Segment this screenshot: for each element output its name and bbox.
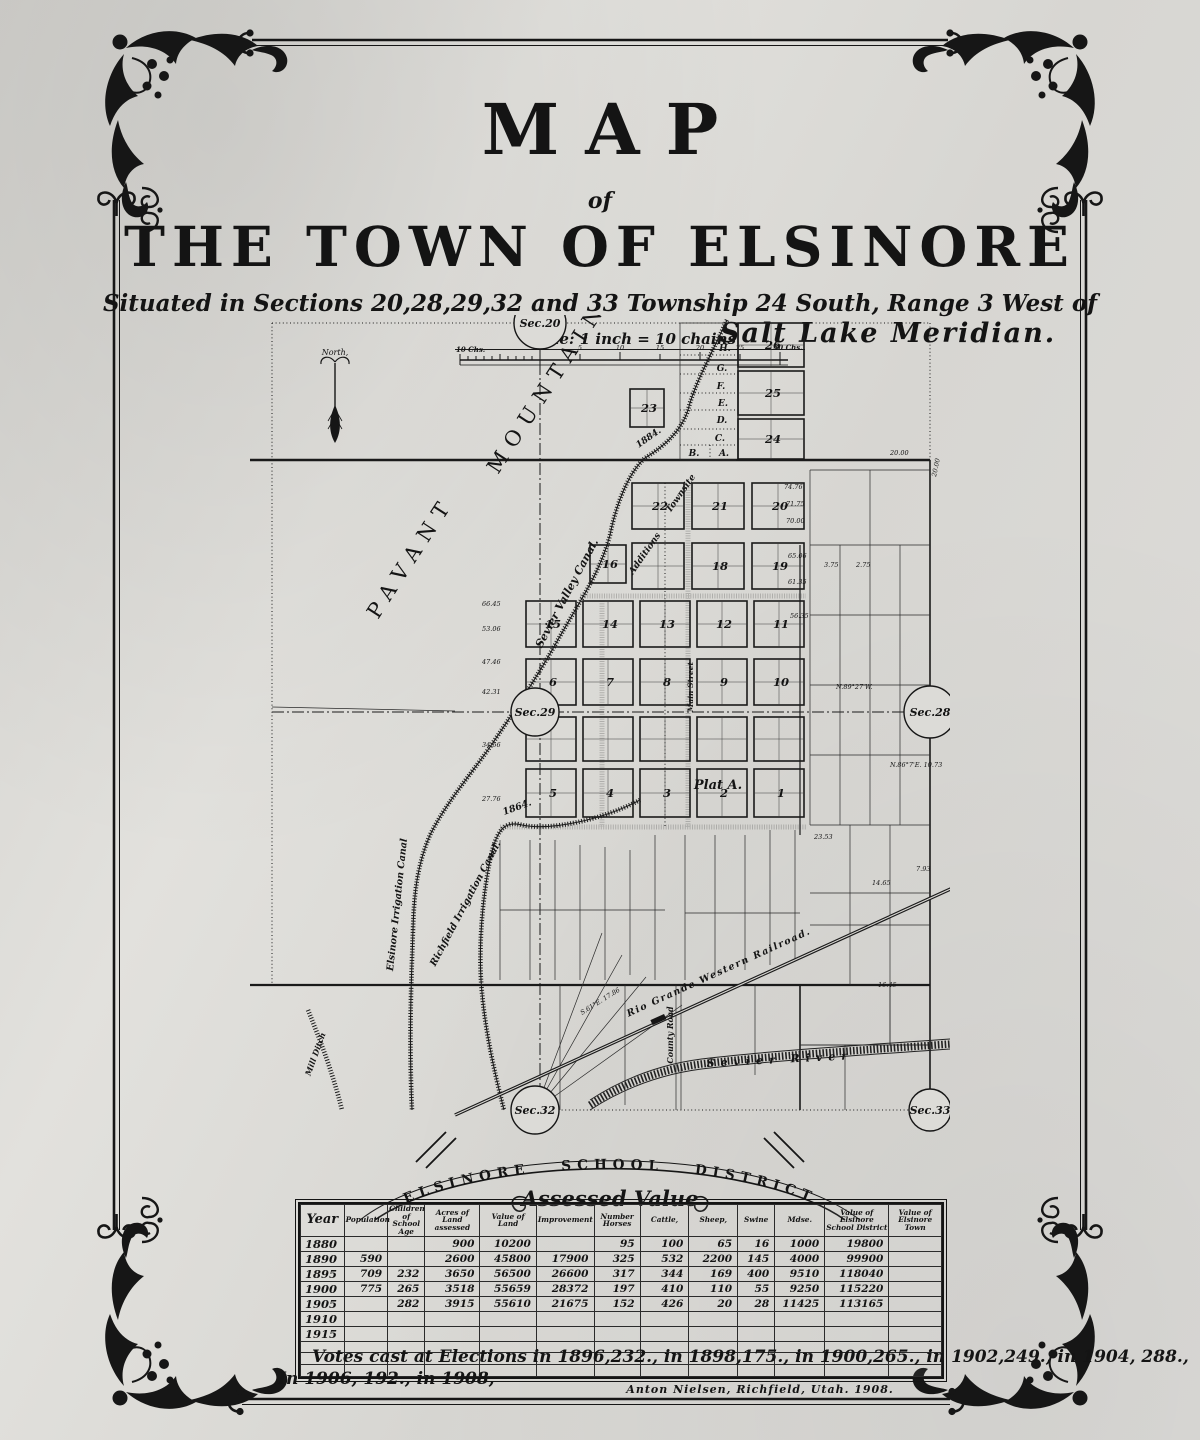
block-number: 11 [773,617,789,631]
block-number: 1 [777,786,785,800]
sec29-label: Sec.29 [515,706,556,719]
table-column-header: Number Horses [594,1205,640,1237]
block-number: 25 [764,386,781,400]
corner-flourish-bottom-left [105,1223,287,1409]
letter-lot-label: E. [717,399,728,409]
table-row: 188090010200951006516100019800 [301,1236,942,1251]
block-number: 6 [549,675,557,689]
map-title: MAP [0,88,1200,171]
table-column-header: Children of School Age [388,1205,425,1237]
county-road-label: County Road [665,1006,675,1064]
survey-measurement: 27.76 [481,795,501,803]
survey-measurement: 20.00 [930,458,942,479]
townsite-label: Townsite [665,473,699,515]
table-column-header: Acres of Land assessed [425,1205,480,1237]
block-number: 21 [711,499,728,513]
block-number: 5 [549,786,557,800]
votes-line1: Votes cast at Elections in 1896,232., in… [312,1347,1189,1367]
block-number: 18 [712,559,728,573]
block-number: 4 [606,786,614,800]
table-column-header: Population [344,1205,388,1237]
table-row: 1905282391555610216751524262028114251131… [301,1296,942,1311]
block-number: 9 [720,675,728,689]
sec28-label: Sec.28 [910,706,950,719]
table-row: 1910 [301,1311,942,1326]
north-label: North, [321,348,349,357]
block-number: 16 [602,557,618,571]
survey-measurement: 53.06 [482,625,501,633]
block-number: 7 [606,675,614,689]
sec32-label: Sec.32 [515,1104,556,1117]
richfield-canal-year: 1864. [501,797,533,818]
survey-measurement: N.89°27'W. [835,683,873,691]
main-street-label: Main Street [686,662,695,713]
survey-measurement: 70.00 [786,517,805,525]
survey-measurement: 71.75 [786,500,805,508]
survey-measurement: 14.65 [872,879,891,887]
survey-measurement: 74.76 [784,483,803,491]
measurements-layer: 20.0066.4553.0647.4642.3134.5627.7674.76… [481,449,942,1017]
table-column-header: Value of Elsinore School District [825,1205,889,1237]
survey-measurement: 42.31 [481,688,501,696]
survey-measurement: 34.56 [482,741,501,749]
table-column-header: Cattle, [640,1205,689,1237]
plat-a-label: Plat A. [693,778,742,793]
table-column-header: Value of Land [480,1205,536,1237]
subtitle-line1: Situated in Sections 20,28,29,32 and 33 … [0,290,1200,317]
letter-lot-label: A. [718,449,729,459]
block-number: 26 [764,338,781,352]
sec20-label: Sec.20 [520,317,561,330]
elsinore-canal-label: Elsinore Irrigation Canal [385,838,410,973]
cartographer-credit: Anton Nielsen, Richfield, Utah. 1908. [570,1383,950,1396]
block-number: 10 [773,675,789,689]
map-document-page: { "title": { "map": "MAP", "of": "of", "… [0,0,1200,1440]
sevier-river [590,1038,950,1110]
north-arrow: North, [321,348,349,443]
table-column-header: Swine [738,1205,775,1237]
block-number: 12 [716,617,732,631]
letter-lot-label: D. [716,416,728,426]
block-number: 19 [772,559,788,573]
survey-measurement: 3.75 [824,561,838,569]
survey-measurement: 7.93 [916,865,930,873]
railroad-label: Rio Grande Western Railroad. [624,926,813,1020]
letter-lot-label: F. [716,382,726,392]
survey-measurement: 66.45 [482,600,501,608]
table-column-header: Value of Elsinore Town [889,1205,942,1237]
survey-measurement: 61.35 [788,578,807,586]
table-row: 1900775265351855659283721974101105592501… [301,1281,942,1296]
letter-lots-layer: H.G.F.E.D.C.B.A. [688,344,731,459]
mill-ditch-label: Mill Ditch [302,1031,327,1078]
table-header-row: YearPopulationChildren of School AgeAcre… [301,1205,942,1237]
richfield-canal-label: Richfield Irrigation Canal. [428,840,504,969]
railroad-line [455,881,950,1115]
survey-measurement: 20.00 [889,449,909,457]
table-row: 1890590260045800179003255322200145400099… [301,1251,942,1266]
block-number: 14 [602,617,618,631]
table-row: 1895709232365056500266003173441694009510… [301,1266,942,1281]
survey-measurement: 56.35 [790,612,809,620]
block-number: 3 [663,786,671,800]
river-label: Sevier River [706,1049,853,1070]
survey-measurement: N.86°7'E. 10.73 [889,761,942,769]
table-column-header: Year [301,1205,345,1237]
block-number: 13 [659,617,675,631]
table-column-header: Sheep, [689,1205,738,1237]
title-of: of [0,188,1200,214]
table-column-header: Improvement [536,1205,594,1237]
sevier-valley-canal-label: Sevier Valley Canal. [533,537,602,650]
section-markers: Sec.20 Sec.29 Sec.28 Sec.32 Sec.33 [511,315,950,1134]
letter-lot-label: C. [715,434,725,444]
survey-measurement: S.61°E. 17.86 [579,986,622,1017]
letter-lot-label: H. [718,344,731,354]
survey-measurement: 65.06 [788,552,807,560]
table-row: 1915 [301,1326,942,1341]
table-column-header: Mdse. [775,1205,825,1237]
survey-measurement: 2.75 [855,561,870,569]
block-number: 8 [663,675,671,689]
town-title: THE TOWN OF ELSINORE [0,214,1200,279]
pavant-label: PAVANT [362,491,459,623]
block-number: 24 [764,432,781,446]
letter-lot-label: G. [717,364,728,374]
block-number: 23 [640,401,657,415]
survey-measurement: 47.46 [481,658,501,666]
votes-line2: In 1906, 192., in 1908, [278,1369,495,1389]
sec33-label: Sec.33 [910,1104,950,1117]
town-plat-map: North, PAVANT MOUNTAINS. 262524232221201… [250,315,950,1135]
letter-lot-label: B. [688,449,700,459]
survey-measurement: 16.45 [878,981,897,989]
survey-measurement: 23.53 [813,833,833,841]
